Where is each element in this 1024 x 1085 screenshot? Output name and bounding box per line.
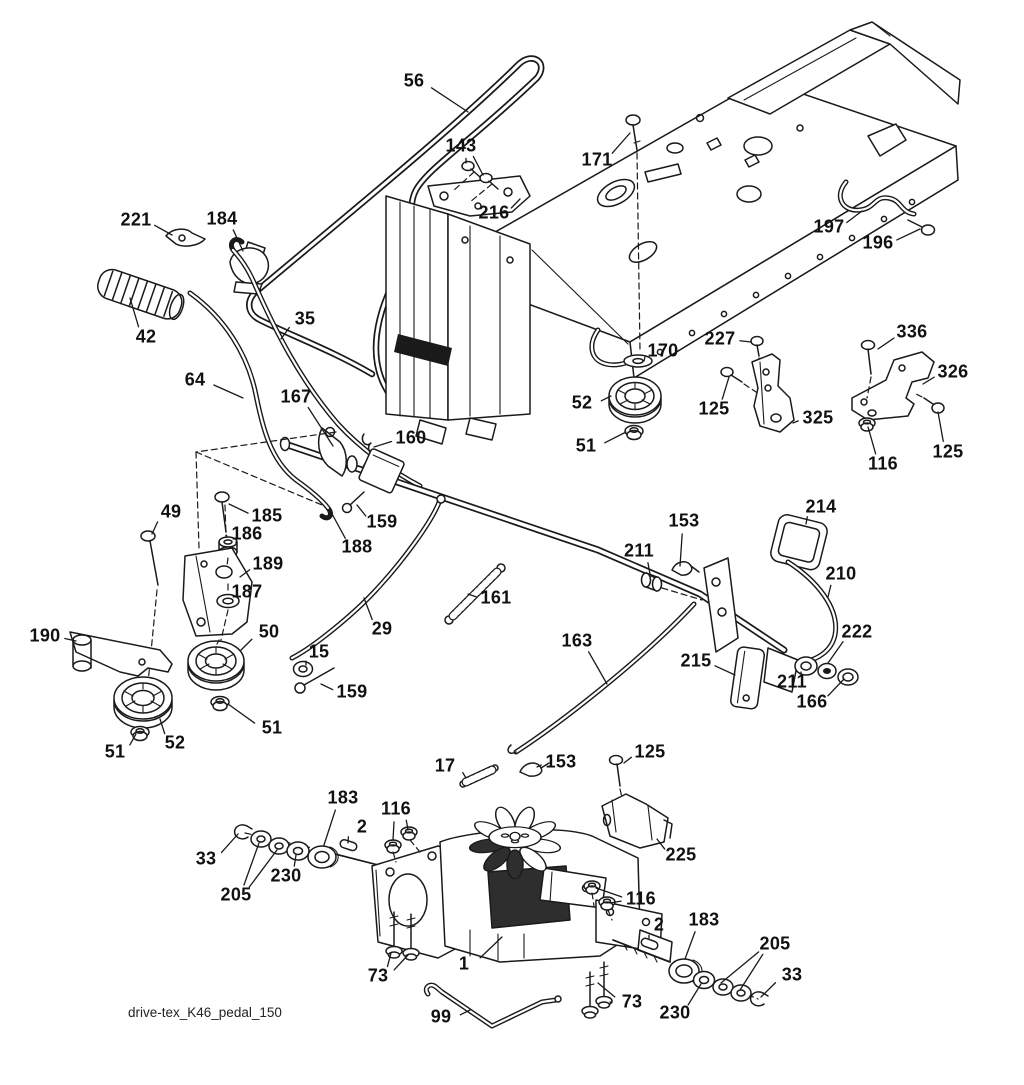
part-label-184: 184 <box>207 209 238 230</box>
bearing-222 <box>818 664 836 679</box>
part-label-52: 52 <box>572 393 593 414</box>
part-label-197: 197 <box>814 217 845 238</box>
part-label-183: 183 <box>328 788 359 809</box>
part-label-221: 221 <box>121 210 152 231</box>
leader-33 <box>222 834 238 852</box>
bearing-183-left <box>308 846 338 868</box>
parts-diagram: 5614317121622118442356416716017052512271… <box>0 0 1024 1085</box>
part-label-116: 116 <box>381 799 411 820</box>
part-label-159: 159 <box>367 512 398 533</box>
part-label-49: 49 <box>161 502 182 523</box>
nut-116-right <box>859 418 875 431</box>
leader-116 <box>393 822 394 840</box>
washer-15 <box>294 662 313 677</box>
bumper-215 <box>730 646 765 709</box>
pulley-50 <box>188 641 244 690</box>
idler-pulley-52-top <box>609 377 661 423</box>
part-label-325: 325 <box>803 408 834 429</box>
part-label-2: 2 <box>654 915 664 936</box>
leader-183 <box>685 932 695 959</box>
leader-183 <box>324 810 335 845</box>
part-label-56: 56 <box>404 71 425 92</box>
part-label-183: 183 <box>689 910 720 931</box>
leader-51 <box>605 432 626 443</box>
clip-221 <box>166 229 205 246</box>
leader-171 <box>612 133 630 153</box>
part-label-196: 196 <box>863 233 894 254</box>
leader-159 <box>321 684 333 690</box>
pedal-assembly <box>642 513 859 710</box>
part-label-167: 167 <box>281 387 312 408</box>
part-label-35: 35 <box>295 309 316 330</box>
part-label-215: 215 <box>681 651 712 672</box>
lever-167 <box>319 428 347 477</box>
rod-163 <box>508 604 694 753</box>
spring-17 <box>460 765 498 787</box>
part-label-153: 153 <box>669 511 700 532</box>
leader-221 <box>155 225 172 235</box>
part-label-51: 51 <box>105 742 126 763</box>
pedal-pad-214 <box>769 513 829 572</box>
leader-188 <box>331 512 345 538</box>
leader-196 <box>897 229 920 240</box>
part-label-216: 216 <box>479 203 510 224</box>
part-label-211: 211 <box>624 541 654 562</box>
ring-33-right <box>751 992 768 1006</box>
bolt-185 <box>215 492 229 536</box>
part-label-187: 187 <box>232 582 263 603</box>
part-label-1: 1 <box>459 954 469 975</box>
bracket-326 <box>852 352 934 420</box>
leader-50 <box>241 639 252 650</box>
leader-325 <box>793 421 798 423</box>
part-label-160: 160 <box>396 428 427 449</box>
part-label-33: 33 <box>782 965 803 986</box>
part-label-170: 170 <box>648 341 679 362</box>
part-label-210: 210 <box>826 564 857 585</box>
leader-64 <box>214 385 243 398</box>
idler-pulley-52-left <box>114 677 172 728</box>
part-label-190: 190 <box>30 626 61 647</box>
leader-336 <box>878 338 894 349</box>
part-label-51: 51 <box>576 436 597 457</box>
bracket-225 <box>602 794 672 848</box>
leader-170 <box>644 357 645 361</box>
part-label-188: 188 <box>342 537 373 558</box>
part-label-2: 2 <box>357 817 367 838</box>
bracket-190 <box>70 632 172 676</box>
leader-185 <box>229 504 248 513</box>
part-label-171: 171 <box>582 150 613 171</box>
part-label-125: 125 <box>699 399 730 420</box>
leader-166 <box>828 679 844 696</box>
part-label-116: 116 <box>868 454 898 475</box>
part-label-73: 73 <box>622 992 643 1013</box>
leader-17 <box>463 773 466 778</box>
part-label-214: 214 <box>806 497 837 518</box>
bracket-325 <box>752 354 794 432</box>
pedal-bracket <box>704 558 738 652</box>
grip-42 <box>94 266 187 323</box>
leader-159 <box>357 505 366 516</box>
leader-49 <box>152 522 158 534</box>
part-label-143: 143 <box>446 136 477 157</box>
ring-33-left <box>235 825 252 839</box>
part-label-125: 125 <box>635 742 666 763</box>
part-label-161: 161 <box>481 588 512 609</box>
leader-163 <box>589 652 607 684</box>
part-label-230: 230 <box>271 866 302 887</box>
leader-205 <box>244 843 259 885</box>
part-label-29: 29 <box>372 619 393 640</box>
leader-73 <box>598 983 615 997</box>
leader-215 <box>715 666 735 675</box>
screw-125-right <box>914 393 944 413</box>
bolt-125-left <box>721 368 756 393</box>
leader-56 <box>431 88 468 112</box>
nut-51-right <box>211 697 229 711</box>
part-label-99: 99 <box>431 1007 452 1028</box>
part-label-163: 163 <box>562 631 593 652</box>
part-label-153: 153 <box>546 752 577 773</box>
part-label-227: 227 <box>705 329 736 350</box>
leader-210 <box>828 585 831 597</box>
leader-125 <box>624 757 631 763</box>
part-label-33: 33 <box>196 849 217 870</box>
diagram-artwork <box>0 0 1024 1085</box>
leader-51 <box>228 704 255 723</box>
part-label-211: 211 <box>777 672 807 693</box>
part-label-116: 116 <box>626 889 656 910</box>
part-label-42: 42 <box>136 327 157 348</box>
part-label-189: 189 <box>253 554 284 575</box>
leader-116 <box>868 427 876 454</box>
leader-125 <box>722 377 729 399</box>
part-label-222: 222 <box>842 622 873 643</box>
plate-188-area <box>358 448 405 494</box>
leader-227 <box>740 341 751 342</box>
part-label-64: 64 <box>185 370 206 391</box>
part-label-336: 336 <box>897 322 928 343</box>
drawing-code: drive-tex_K46_pedal_150 <box>128 1005 282 1020</box>
nut-51-top <box>625 426 643 440</box>
part-label-50: 50 <box>259 622 280 643</box>
leader-205 <box>721 952 759 983</box>
leader-205 <box>740 954 763 990</box>
part-label-225: 225 <box>666 845 697 866</box>
part-label-230: 230 <box>660 1003 691 1024</box>
part-label-73: 73 <box>368 966 389 987</box>
part-label-205: 205 <box>221 885 252 906</box>
leader-125 <box>938 412 943 441</box>
part-label-52: 52 <box>165 733 186 754</box>
part-label-326: 326 <box>938 362 969 383</box>
part-label-166: 166 <box>797 692 828 713</box>
part-label-159: 159 <box>337 682 368 703</box>
leader-33 <box>761 983 775 997</box>
part-label-125: 125 <box>933 442 964 463</box>
clip-153-upper <box>672 562 699 575</box>
part-label-51: 51 <box>262 718 283 739</box>
part-label-15: 15 <box>309 642 330 663</box>
leader-160 <box>374 442 391 447</box>
part-label-205: 205 <box>760 934 791 955</box>
part-label-186: 186 <box>232 524 263 545</box>
bolts-73-right <box>582 962 612 1018</box>
part-label-17: 17 <box>435 756 456 777</box>
